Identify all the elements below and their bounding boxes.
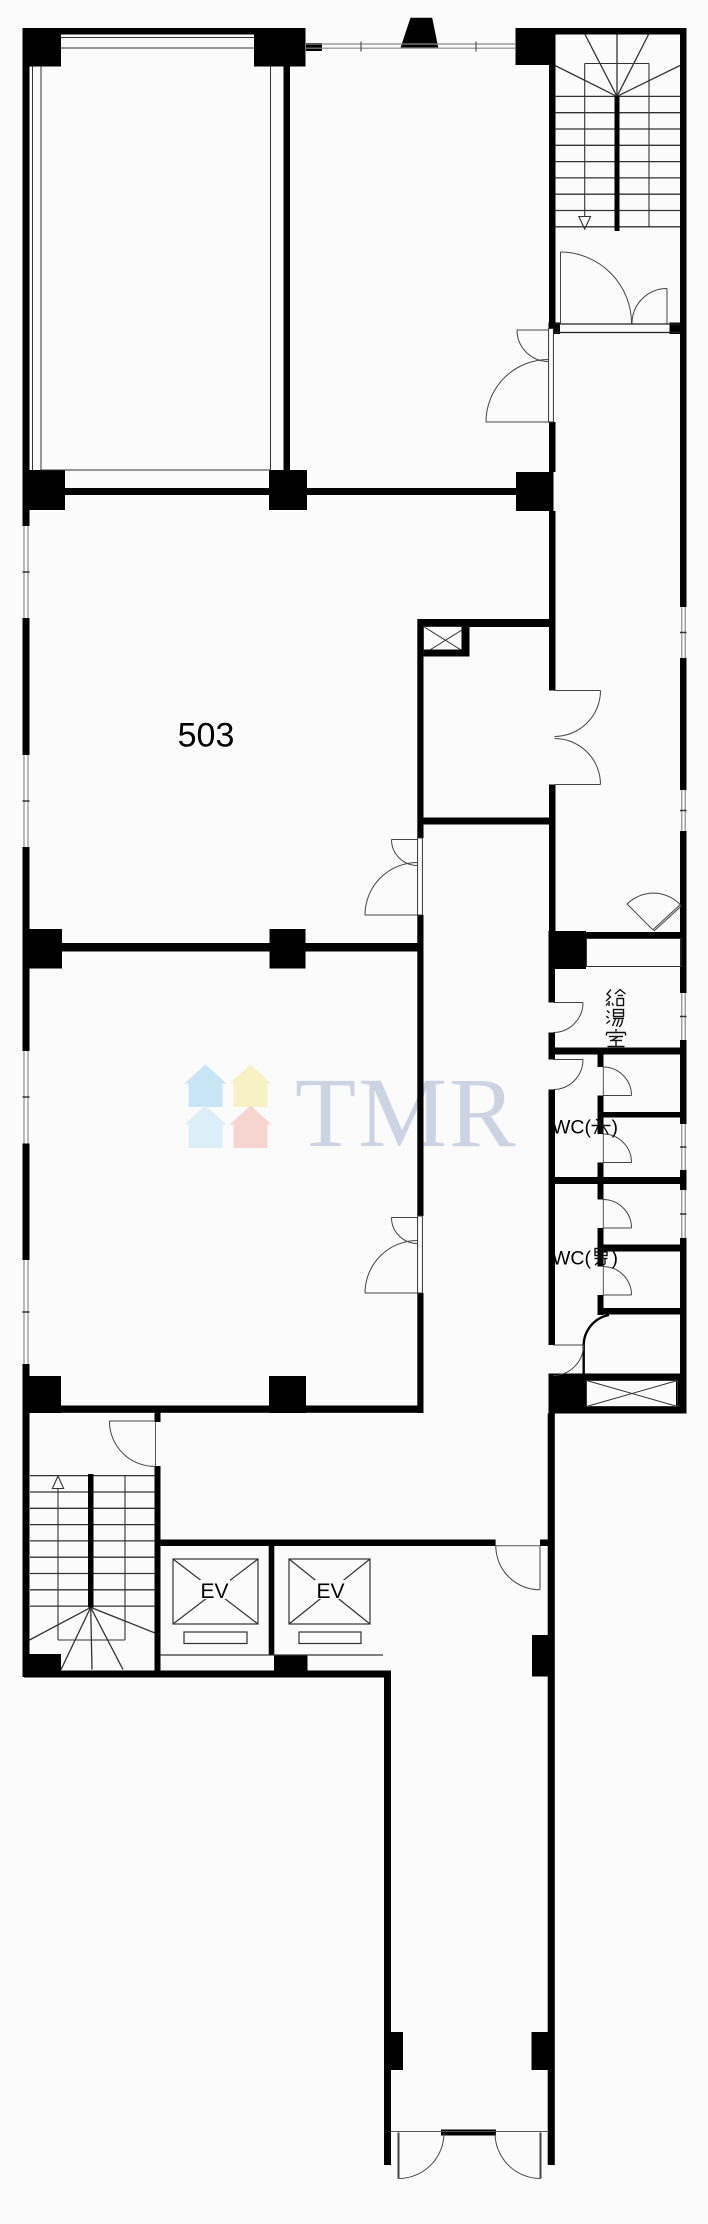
svg-text:WC(: WC( [552, 1248, 591, 1270]
svg-text:WC(: WC( [552, 1117, 591, 1139]
svg-text:503: 503 [178, 717, 235, 755]
svg-text:): ) [612, 1248, 619, 1270]
svg-text:EV: EV [316, 1580, 344, 1603]
svg-text:): ) [612, 1117, 619, 1139]
svg-text:TMR: TMR [295, 1057, 518, 1168]
svg-text:EV: EV [200, 1580, 228, 1603]
